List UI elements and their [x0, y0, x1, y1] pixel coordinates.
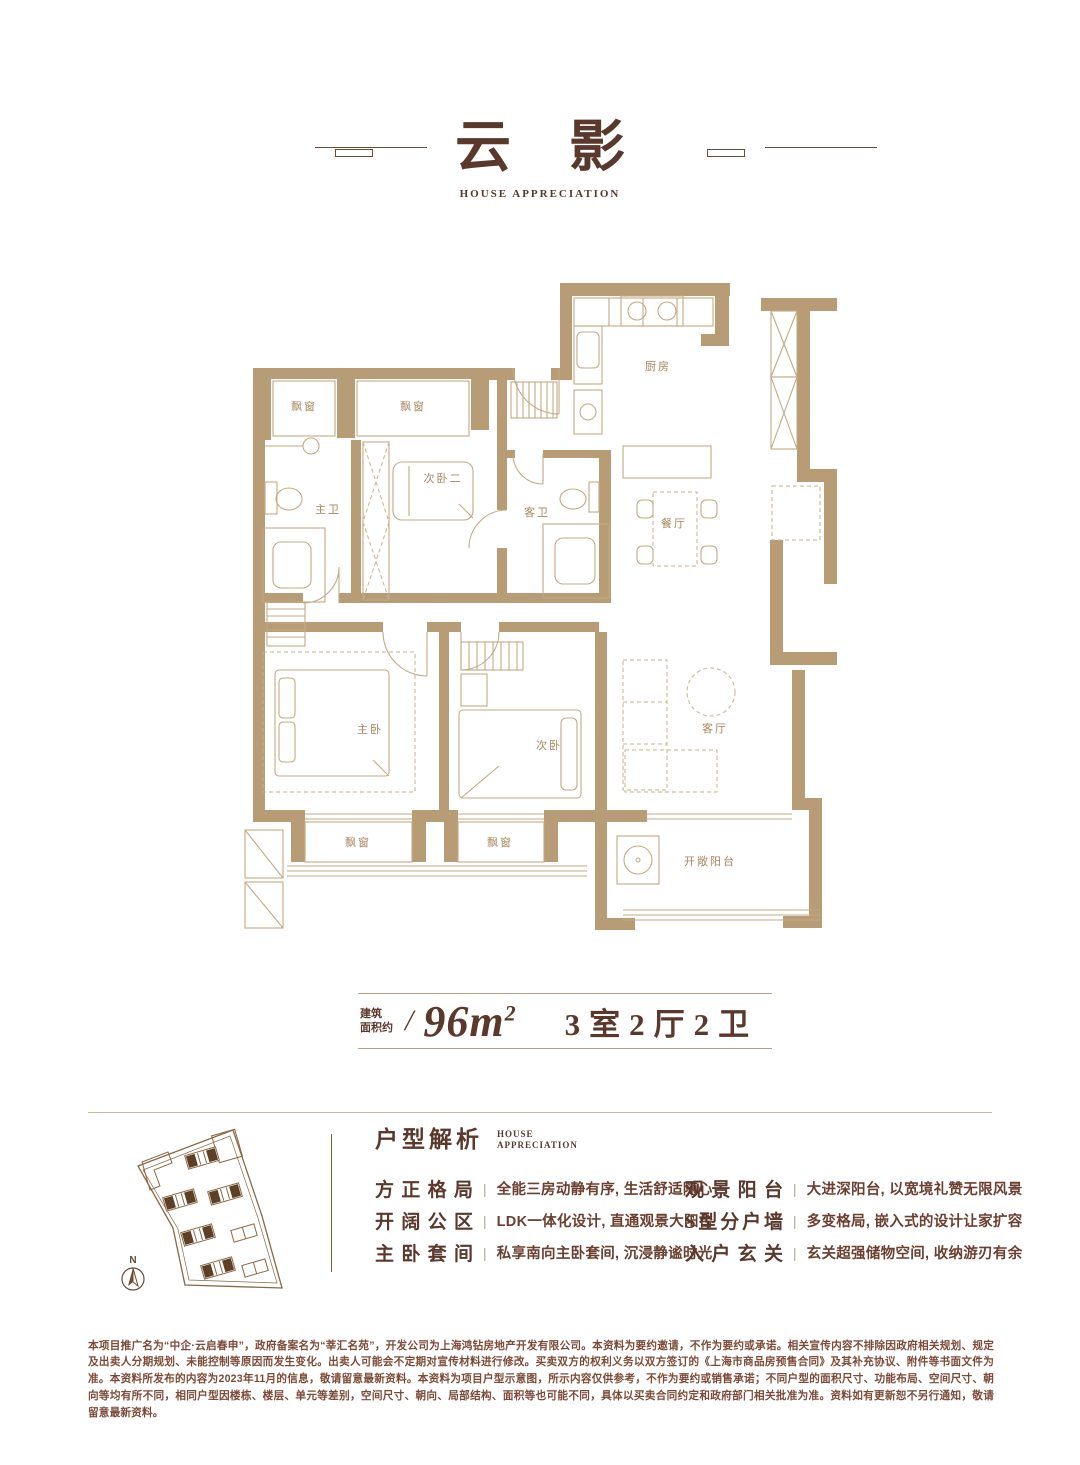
analysis-term: 开阔公区: [375, 1207, 473, 1234]
analysis-left-column: 方正格局 | 全能三房动静有序, 生活舒适随心 开阔公区 | LDK一体化设计,…: [375, 1178, 714, 1274]
room-label-balcony: 开敞阳台: [684, 854, 736, 868]
analysis-desc: 玄关超强储物空间, 收纳游刃有余: [807, 1242, 1023, 1263]
room-label-bay-window: 飘窗: [291, 399, 317, 413]
analysis-desc: 多变格局, 嵌入式的设计让家扩容: [807, 1210, 1023, 1231]
analysis-subtitle-line1: HOUSE: [497, 1129, 578, 1140]
area-info: 建筑 面积约 / 96m2 3室2厅2卫: [358, 993, 772, 1049]
analysis-term: 观景阳台: [685, 1175, 783, 1202]
area-slash: /: [405, 1004, 413, 1038]
analysis-term: 方正格局: [375, 1175, 473, 1202]
page-title: 云影: [397, 118, 683, 180]
ornament-line: [315, 147, 427, 148]
title-ornament-right: [709, 142, 821, 156]
analysis-separator: |: [794, 1213, 796, 1229]
area-room-layout: 3室2厅2卫: [565, 999, 759, 1044]
analysis-subtitle-line2: APPRECIATION: [497, 1140, 578, 1151]
room-label-master-bedroom: 主卧: [357, 723, 383, 736]
analysis-desc: 大进深阳台, 以宽境礼赞无限风景: [807, 1178, 1023, 1199]
analysis-desc: 私享南向主卧套间, 沉浸静谧时光: [497, 1242, 713, 1263]
floorplan-drawing: 飘窗 飘窗 主卫 次卧二 客卫 厨房 餐厅 主卧 次卧 客厅 飘窗 飘窗 开敞阳…: [243, 270, 858, 938]
analysis-item: 主卧套间 | 私享南向主卧套间, 沉浸静谧时光: [375, 1242, 714, 1264]
area-size: 96m2: [423, 996, 516, 1047]
site-plan: N: [92, 1116, 322, 1306]
analysis-subtitle: HOUSE APPRECIATION: [497, 1129, 578, 1152]
analysis-title: 户型解析: [375, 1128, 483, 1151]
room-label-guest-bath: 客卫: [524, 505, 550, 519]
north-label: N: [129, 1255, 136, 1266]
room-label-kitchen: 厨房: [645, 360, 671, 373]
room-label-bay-window: 飘窗: [400, 399, 426, 413]
analysis-desc: LDK一体化设计, 直通观景大阳台: [497, 1210, 714, 1231]
analysis-section: 户型解析 HOUSE APPRECIATION 方正格局 | 全能三房动静有序,…: [375, 1128, 995, 1178]
analysis-term: 主卧套间: [375, 1239, 473, 1266]
analysis-separator: |: [484, 1181, 486, 1197]
area-prefix-line2: 面积约: [360, 1021, 393, 1035]
floorplan-walls: [253, 283, 837, 930]
analysis-separator: |: [484, 1213, 486, 1229]
analysis-item: S型分户墙 | 多变格局, 嵌入式的设计让家扩容: [685, 1210, 1023, 1232]
analysis-term: 入户玄关: [685, 1239, 783, 1266]
room-label-bay-window: 飘窗: [487, 835, 513, 849]
room-label-dining: 餐厅: [661, 516, 687, 530]
analysis-term: S型分户墙: [685, 1207, 783, 1234]
ornament-line: [765, 147, 877, 148]
room-label-living: 客厅: [702, 721, 728, 735]
analysis-separator: |: [794, 1245, 796, 1261]
room-label-bay-window: 飘窗: [345, 835, 371, 849]
analysis-item: 入户玄关 | 玄关超强储物空间, 收纳游刃有余: [685, 1242, 1023, 1264]
analysis-separator: |: [794, 1181, 796, 1197]
north-arrow-icon: N: [122, 1255, 144, 1290]
room-label-bedroom-two: 次卧二: [424, 471, 463, 485]
title-ornament-left: [259, 142, 371, 156]
area-prefix-line1: 建筑: [360, 1007, 393, 1021]
room-label-master-bath: 主卫: [315, 503, 341, 516]
analysis-item: 开阔公区 | LDK一体化设计, 直通观景大阳台: [375, 1210, 714, 1232]
site-plan-buildings: [163, 1147, 268, 1279]
page-subtitle: HOUSE APPRECIATION: [0, 188, 1080, 200]
legal-disclaimer: 本项目推广名为“中企·云启春申”，政府备案名为“莘汇名苑”，开发公司为上海鸿钻房…: [88, 1338, 994, 1422]
header: 云影 HOUSE APPRECIATION: [0, 118, 1080, 200]
analysis-item: 观景阳台 | 大进深阳台, 以宽境礼赞无限风景: [685, 1178, 1023, 1200]
analysis-desc: 全能三房动静有序, 生活舒适随心: [497, 1178, 713, 1199]
analysis-separator: |: [484, 1245, 486, 1261]
ornament-bar: [707, 149, 745, 157]
section-divider-rule: [88, 1112, 992, 1113]
vertical-divider: [331, 1134, 332, 1272]
area-prefix: 建筑 面积约: [360, 1007, 393, 1036]
area-size-sup: 2: [505, 1000, 517, 1025]
analysis-item: 方正格局 | 全能三房动静有序, 生活舒适随心: [375, 1178, 714, 1200]
poster-page: 云影 HOUSE APPRECIATION: [0, 0, 1080, 1465]
ornament-bar: [335, 149, 373, 157]
floorplan-fixtures: [245, 296, 820, 928]
room-label-second-bedroom: 次卧: [536, 738, 562, 752]
area-size-value: 96m: [423, 997, 504, 1046]
analysis-right-column: 观景阳台 | 大进深阳台, 以宽境礼赞无限风景 S型分户墙 | 多变格局, 嵌入…: [685, 1178, 1023, 1274]
